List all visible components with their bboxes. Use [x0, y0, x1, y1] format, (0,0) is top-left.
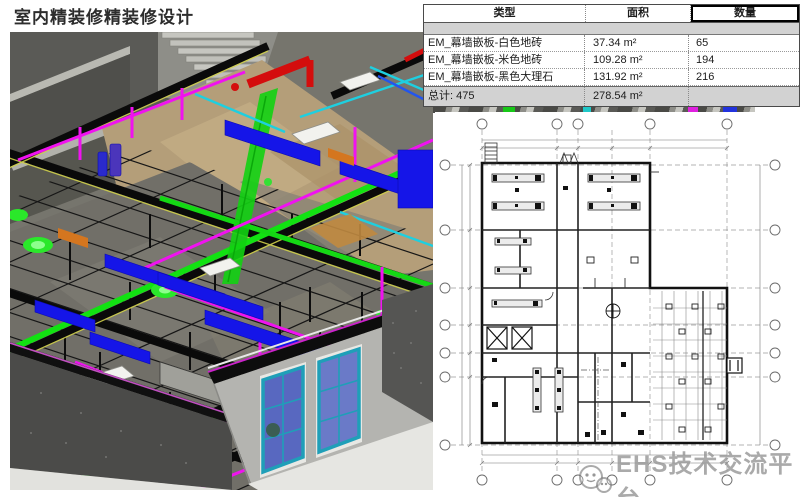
watermark-text: EHS技术交流平台	[616, 444, 802, 497]
schedule-total-row: 总计: 475 278.54 m²	[424, 86, 799, 106]
cell-area: 131.92 m²	[585, 69, 689, 85]
round-table	[606, 304, 620, 318]
header-type: 类型	[424, 5, 586, 22]
side-entry	[727, 358, 742, 373]
floor-plan-view	[435, 112, 800, 497]
cell-area: 109.28 m²	[585, 52, 689, 68]
quantity-schedule-table: 类型 面积 数量 EM_幕墙嵌板-白色地砖 37.34 m² 65 EM_幕墙嵌…	[423, 4, 800, 107]
header-area: 面积	[586, 5, 691, 22]
slide-page: 室内精装修精装修设计	[0, 0, 802, 497]
schedule-header-row: 类型 面积 数量	[424, 5, 799, 23]
cell-count: 194	[689, 52, 797, 68]
schedule-row-1: EM_幕墙嵌板-白色地砖 37.34 m² 65	[424, 35, 799, 52]
cell-area: 37.34 m²	[585, 35, 689, 51]
page-title: 室内精装修精装修设计	[14, 3, 194, 28]
cell-type: EM_幕墙嵌板-黑色大理石	[424, 69, 585, 85]
schedule-row-2: EM_幕墙嵌板-米色地砖 109.28 m² 194	[424, 52, 799, 69]
wechat-chat-bubbles-icon	[578, 464, 612, 494]
cell-type: EM_幕墙嵌板-米色地砖	[424, 52, 585, 68]
cell-type: EM_幕墙嵌板-白色地砖	[424, 35, 585, 51]
bim-3d-view	[10, 32, 433, 490]
schedule-row-3: EM_幕墙嵌板-黑色大理石 131.92 m² 216	[424, 69, 799, 86]
bim-3d-render	[10, 32, 433, 490]
watermark: EHS技术交流平台	[578, 444, 802, 497]
total-label: 总计: 475	[424, 87, 585, 106]
header-count-selected: 数量	[691, 5, 799, 22]
total-area: 278.54 m²	[585, 87, 689, 106]
cell-count: 65	[689, 35, 797, 51]
schedule-group-band	[424, 23, 799, 35]
cell-count: 216	[689, 69, 797, 85]
floor-plan-drawing	[435, 112, 800, 497]
